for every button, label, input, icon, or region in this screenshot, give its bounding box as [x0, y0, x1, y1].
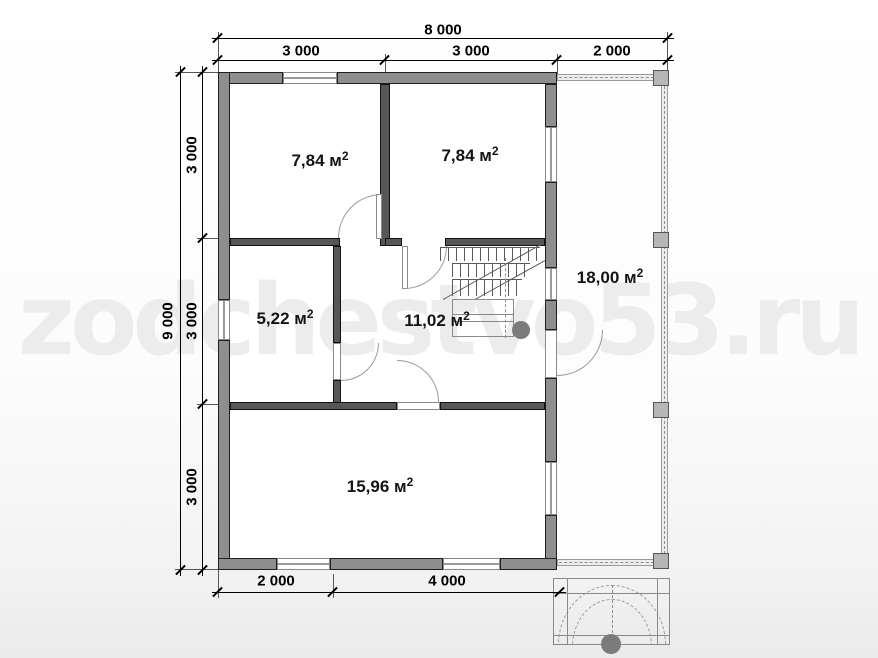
- dim-left-seg3-label: 3 000: [184, 468, 201, 506]
- veranda-post-top-right: [653, 70, 669, 86]
- window-right-bottom-room: [545, 462, 557, 515]
- floor-plan-canvas: zodchestvo53.ru: [0, 0, 878, 658]
- wall-bottom-b: [330, 558, 443, 570]
- room-label-bottom: 15,96 м2: [347, 475, 414, 497]
- wall-mid-horizontal-c: [445, 238, 545, 246]
- dim-bottom-seg1-label: 2 000: [257, 573, 295, 590]
- room-area-sup: 2: [307, 307, 314, 321]
- room-area-value: 5,22 м: [256, 309, 306, 328]
- window-right-room2: [545, 127, 557, 182]
- dim-line-left-total: [180, 66, 181, 576]
- dim-line-left-segments: [202, 66, 203, 576]
- room-area-sup: 2: [463, 309, 470, 323]
- room-label-top-middle: 7,84 м2: [441, 144, 498, 166]
- room-area-value: 11,02 м: [404, 311, 463, 330]
- veranda-wall-right-dash: [664, 76, 665, 564]
- dim-top-seg1-label: 3 000: [282, 43, 320, 60]
- veranda-wall-top-dash: [559, 77, 659, 78]
- wall-right-a: [545, 84, 557, 127]
- porch-post: [601, 634, 621, 654]
- room-label-top-left: 7,84 м2: [291, 149, 348, 171]
- dim-left-seg2-label: 3 000: [184, 302, 201, 340]
- window-bottom-1: [277, 558, 330, 570]
- room-area-sup: 2: [637, 266, 644, 280]
- dim-top-total-label: 8 000: [424, 22, 462, 39]
- room-label-veranda: 18,00 м2: [577, 266, 644, 288]
- wall-right-c: [545, 300, 557, 330]
- door-leaf-veranda: [545, 330, 557, 378]
- dim-bottom-seg2-label: 4 000: [428, 573, 466, 590]
- wall-lower-horizontal-a: [230, 402, 397, 410]
- wall-bottom-a: [218, 558, 277, 570]
- window-top: [283, 72, 337, 84]
- wall-left-b: [218, 340, 230, 570]
- stair-rail-dashed-line: [505, 258, 506, 338]
- window-right-stair: [545, 268, 557, 300]
- room-area-value: 7,84 м: [441, 146, 491, 165]
- room-area-value: 7,84 м: [291, 151, 341, 170]
- room-area-sup: 2: [342, 149, 349, 163]
- dim-left-seg1-label: 3 000: [184, 136, 201, 174]
- wall-mid-horizontal-b: [385, 238, 402, 246]
- stair-newel-post: [512, 321, 530, 339]
- room-area-sup: 2: [407, 475, 414, 489]
- veranda-post-mid-2: [653, 402, 669, 418]
- wall-left-a: [218, 72, 230, 300]
- extension-line: [333, 574, 334, 598]
- wall-storeroom-right-a: [333, 246, 341, 343]
- window-left: [218, 300, 230, 340]
- door-leaf-bottom-room: [397, 402, 440, 410]
- wall-right-d: [545, 378, 557, 462]
- room-area-sup: 2: [492, 144, 499, 158]
- room-label-hall: 11,02 м2: [404, 309, 470, 331]
- wall-top-b: [337, 72, 557, 84]
- dim-top-seg2-label: 3 000: [452, 43, 490, 60]
- wall-lower-horizontal-b: [440, 402, 545, 410]
- dim-top-seg3-label: 2 000: [593, 43, 631, 60]
- room-area-value: 18,00 м: [577, 268, 637, 287]
- door-leaf-storeroom: [333, 343, 341, 380]
- room-area-value: 15,96 м: [347, 477, 407, 496]
- veranda-post-mid-1: [653, 232, 669, 248]
- window-bottom-2: [443, 558, 500, 570]
- wall-mid-horizontal-a: [230, 238, 340, 246]
- wall-bottom-c: [500, 558, 557, 570]
- dim-line-bottom: [212, 592, 566, 593]
- extension-line: [218, 570, 219, 598]
- wall-right-b: [545, 182, 557, 268]
- veranda-wall-bottom-dash: [559, 562, 659, 563]
- veranda-post-bottom-right: [653, 553, 669, 569]
- room-label-mid-left: 5,22 м2: [256, 307, 313, 329]
- dim-line-top-segments: [212, 60, 674, 61]
- dim-left-total-label: 9 000: [160, 302, 177, 340]
